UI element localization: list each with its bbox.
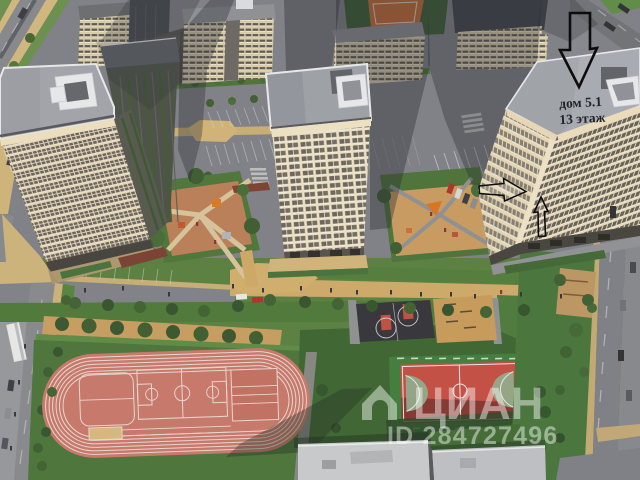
svg-text:ID 284727496: ID 284727496 <box>387 422 558 450</box>
svg-text:дом 5.1: дом 5.1 <box>559 94 603 111</box>
svg-text:13 этаж: 13 этаж <box>559 110 606 127</box>
